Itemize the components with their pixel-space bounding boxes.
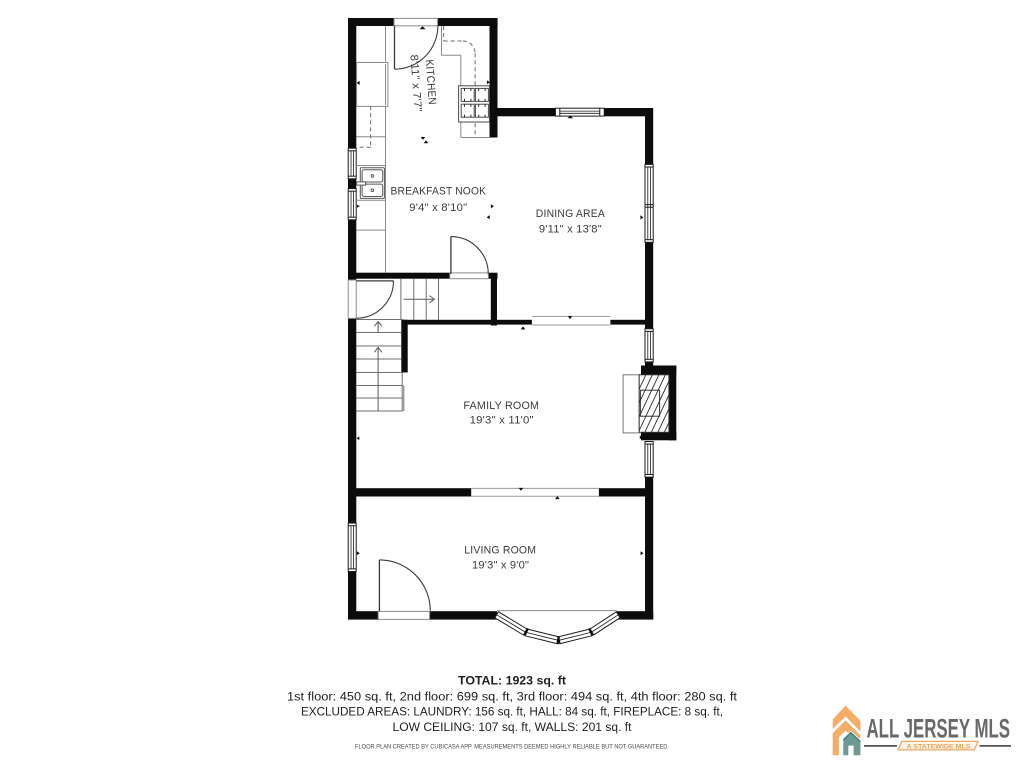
svg-text:LIVING ROOM: LIVING ROOM	[464, 545, 536, 557]
svg-text:A STATEWIDE MLS: A STATEWIDE MLS	[907, 744, 971, 751]
svg-text:FAMILY ROOM: FAMILY ROOM	[463, 400, 539, 412]
svg-text:TOTAL: 1923 sq. ft: TOTAL: 1923 sq. ft	[458, 674, 566, 688]
svg-text:BREAKFAST NOOK: BREAKFAST NOOK	[391, 185, 487, 197]
svg-text:EXCLUDED AREAS: LAUNDRY: 156 s: EXCLUDED AREAS: LAUNDRY: 156 sq. ft, HAL…	[301, 705, 723, 719]
svg-text:1st floor: 450 sq. ft, 2nd flo: 1st floor: 450 sq. ft, 2nd floor: 699 sq…	[287, 690, 738, 704]
svg-text:19'3" x 9'0": 19'3" x 9'0"	[472, 560, 529, 572]
svg-text:9'11" x 13'8": 9'11" x 13'8"	[539, 224, 602, 236]
svg-text:DINING AREA: DINING AREA	[536, 208, 606, 220]
svg-text:ALL JERSEY MLS: ALL JERSEY MLS	[867, 713, 1011, 743]
svg-text:19'3" x 11'0": 19'3" x 11'0"	[470, 415, 534, 427]
svg-text:LOW CEILING: 107 sq. ft, WALLS: LOW CEILING: 107 sq. ft, WALLS: 201 sq. …	[393, 720, 633, 734]
svg-text:9'4" x 8'10": 9'4" x 8'10"	[409, 202, 467, 214]
svg-text:FLOOR PLAN CREATED BY CUBICASA: FLOOR PLAN CREATED BY CUBICASA APP. MEAS…	[355, 744, 669, 751]
